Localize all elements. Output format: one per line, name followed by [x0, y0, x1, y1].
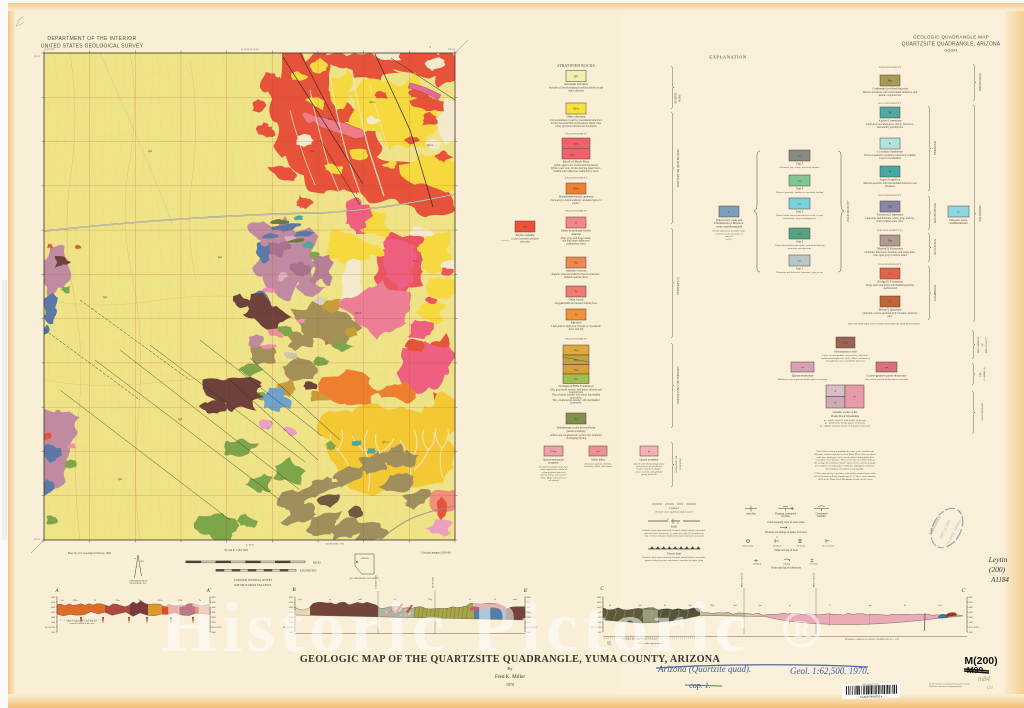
svg-text:SEA LEVEL: SEA LEVEL — [969, 626, 980, 629]
svg-text:DISCONFORMITY: DISCONFORMITY — [878, 194, 901, 197]
svg-text:6000´: 6000´ — [51, 596, 56, 599]
svg-text:Older basalt: Older basalt — [568, 298, 583, 302]
svg-text:m84: m84 — [978, 675, 991, 683]
svg-text:undifferentiated: undifferentiated — [950, 222, 968, 225]
svg-text:QTha: QTha — [573, 188, 580, 191]
svg-text:Qal: Qal — [218, 255, 222, 259]
svg-text:6000´: 6000´ — [969, 596, 974, 599]
svg-text:Ps: Ps — [889, 171, 891, 174]
svg-text:Unit 4: Unit 4 — [796, 187, 804, 191]
svg-text:4°: 4° — [789, 527, 791, 530]
svg-text:flows and tuff: flows and tuff — [569, 328, 585, 331]
svg-text:Folds showing trace of axial p: Folds showing trace of axial plane — [768, 521, 806, 524]
svg-text:Biotite andesite: Biotite andesite — [516, 233, 535, 237]
svg-text:Escabrosa Limestone: Escabrosa Limestone — [877, 213, 904, 217]
svg-text:Dolomite and dolomitic limesto: Dolomite and dolomitic limestone, gray t… — [775, 271, 823, 274]
svg-text:Publication authorized accompa: Publication authorized accompanying map — [929, 685, 961, 688]
svg-text:bedded andesite flows: bedded andesite flows — [564, 276, 588, 279]
svg-text:Inclined: Inclined — [773, 545, 782, 548]
svg-text:side. Arrows indicate relative: side. Arrows indicate relative direction… — [644, 535, 704, 538]
svg-text:UNCONFORMITY: UNCONFORMITY — [565, 133, 588, 136]
svg-text:Overturned: Overturned — [822, 545, 834, 548]
svg-text:PERMIAN: PERMIAN — [933, 140, 937, 155]
svg-text:1967) in the Dome Rock Mountai: 1967) in the Dome Rock Mountains (8 mile… — [818, 478, 873, 481]
svg-text:Bolsa(?) Quartzite: Bolsa(?) Quartzite — [879, 308, 902, 312]
svg-text:pebble conglomerate: pebble conglomerate — [878, 94, 902, 97]
svg-text:Fault: Fault — [671, 525, 678, 529]
svg-text:CONTOUR INTERVAL 40 FEET: CONTOUR INTERVAL 40 FEET — [234, 579, 273, 582]
svg-text:For sale by the U.S. Geologica: For sale by the U.S. Geological Survey, … — [929, 683, 970, 686]
svg-text:Continental red-bed deposits: Continental red-bed deposits — [872, 87, 908, 91]
svg-text:Mafic dikes: Mafic dikes — [591, 458, 606, 462]
svg-text:mudstone: mudstone — [885, 185, 896, 188]
svg-text:QUATER-: QUATER- — [675, 92, 678, 104]
svg-text:QTmp: QTmp — [551, 451, 558, 453]
svg-text:KILOMETERS: KILOMETERS — [300, 570, 317, 573]
svg-text:Kaibab Limestone: Kaibab Limestone — [879, 119, 902, 123]
svg-text:ferruginous mica is probably i: ferruginous mica is probably intrusive — [826, 360, 865, 363]
svg-text:1000´: 1000´ — [969, 631, 974, 634]
svg-text:Fred K. Miller: Fred K. Miller — [495, 674, 525, 680]
svg-text:rocks, undifferentiated: rocks, undifferentiated — [716, 224, 743, 228]
svg-text:Vertical: Vertical — [797, 545, 805, 548]
svg-text:1000´: 1000´ — [51, 631, 56, 634]
svg-text:Qal: Qal — [574, 75, 578, 78]
svg-text:EXPLANATION: EXPLANATION — [709, 55, 747, 60]
svg-text:Inclined: Inclined — [753, 563, 762, 566]
svg-text:Contact: Contact — [669, 506, 679, 510]
svg-text:DEPARTMENT OF THE INTERIOR: DEPARTMENT OF THE INTERIOR — [47, 36, 136, 42]
svg-text:Base by U.S. Geological Survey: Base by U.S. Geological Survey, 1962 — [68, 552, 112, 555]
svg-text:MESOZOIC OR: MESOZOIC OR — [675, 455, 678, 472]
svg-text:abundantly fossiliferous: abundantly fossiliferous — [877, 126, 903, 129]
svg-text:114°45': 114°45' — [448, 48, 456, 51]
svg-text:Strike and dip of beds: Strike and dip of beds — [774, 549, 798, 552]
svg-text:queried where positive uncerta: queried where positive uncertain; sawtee… — [645, 559, 704, 562]
svg-text:Anticline: Anticline — [746, 513, 757, 516]
svg-text:of Dripping Spring: of Dripping Spring — [566, 437, 587, 440]
svg-text:pure: pure — [887, 315, 894, 318]
svg-text:Qal: Qal — [61, 600, 64, 602]
svg-text:CENOZOIC: CENOZOIC — [679, 457, 682, 470]
svg-text:QTba: QTba — [73, 600, 78, 602]
svg-text:anticline: anticline — [817, 515, 827, 518]
svg-text:Dm: Dm — [888, 240, 892, 243]
svg-text:quartz porphyry: quartz porphyry — [566, 429, 586, 433]
svg-text:R: R — [793, 617, 811, 643]
svg-text:Coarse-grained quartz monzonit: Coarse-grained quartz monzonite — [867, 374, 908, 378]
svg-text:*: * — [134, 557, 136, 561]
svg-text:Alluvium and talus: Alluvium and talus — [564, 82, 589, 86]
svg-text:CAMBRIAN: CAMBRIAN — [933, 284, 937, 301]
svg-text:Metadiabase rocks: Metadiabase rocks — [834, 350, 857, 354]
svg-text:5000´: 5000´ — [51, 601, 56, 604]
svg-text:Medium to coarse-grained bioti: Medium to coarse-grained biotite quartz … — [777, 378, 827, 381]
svg-text:Qal: Qal — [118, 477, 122, 481]
svg-text:PALEOZOIC(?)*: PALEOZOIC(?)* — [846, 200, 850, 222]
svg-text:Coconino Sandstone: Coconino Sandstone — [877, 150, 903, 154]
svg-text:TKc: TKc — [574, 378, 578, 381]
svg-text:to Pz ): to Pz ) — [726, 238, 733, 241]
svg-text:Basalt of Black Mesa: Basalt of Black Mesa — [563, 160, 590, 164]
svg-text:Abrigo(?) Formation: Abrigo(?) Formation — [877, 280, 903, 284]
svg-text:15: 15 — [776, 537, 778, 539]
svg-text:2000´: 2000´ — [51, 616, 56, 619]
svg-text:porphyry: porphyry — [548, 461, 559, 465]
svg-text:thick bedded, some chert: thick bedded, some chert — [877, 220, 904, 223]
svg-text:Pz: Pz — [904, 605, 906, 607]
svg-text:Livingston Hills Formation: Livingston Hills Formation — [559, 384, 594, 388]
svg-text:gr: gr — [835, 390, 837, 393]
svg-text:quartzite, and quartzite: quartzite, and quartzite — [788, 247, 812, 250]
svg-text:GEOLOGIC QUADRANGLE MAP: GEOLOGIC QUADRANGLE MAP — [913, 35, 989, 40]
svg-text:TERTIARY OR QUATERNARY: TERTIARY OR QUATERNARY — [676, 148, 680, 188]
svg-text:Qal: Qal — [759, 605, 762, 607]
svg-text:Unit 5: Unit 5 — [796, 162, 804, 166]
svg-text:QTba: QTba — [569, 154, 575, 157]
svg-text:QToa: QToa — [573, 108, 580, 111]
svg-text:Quartz monzonite: Quartz monzonite — [792, 374, 814, 378]
svg-text:QTba: QTba — [573, 143, 579, 146]
svg-text:ARIZONA: ARIZONA — [361, 557, 371, 560]
svg-text:Older alluvium: Older alluvium — [567, 115, 586, 119]
svg-text:Tr: Tr — [575, 314, 577, 317]
svg-text:5000´: 5000´ — [969, 601, 974, 604]
svg-text:(200): (200) — [989, 565, 1006, 574]
svg-text:A1184: A1184 — [990, 576, 1009, 584]
svg-text:Qal: Qal — [178, 417, 182, 421]
svg-text:Qal: Qal — [148, 149, 152, 153]
svg-text:UNCONFORMITY: UNCONFORMITY — [565, 210, 588, 213]
svg-text:matrix: matrix — [572, 202, 580, 205]
svg-text:group minerals: group minerals — [641, 473, 656, 476]
svg-text:sedimentary rocks: sedimentary rocks — [566, 243, 586, 246]
svg-text:DISCONFORMITY(?): DISCONFORMITY(?) — [877, 229, 904, 232]
svg-text:Dashed where approximately loc: Dashed where approximately located — [654, 511, 693, 514]
svg-text:MILES: MILES — [313, 562, 321, 565]
svg-text:NARY: NARY — [679, 94, 682, 102]
svg-text:Tam: Tam — [116, 600, 120, 602]
svg-text:Very coarse grained biotite qu: Very coarse grained biotite quartz monzo… — [865, 378, 908, 381]
svg-text:Geol. 1:62,500. 1970.: Geol. 1:62,500. 1970. — [790, 666, 869, 676]
svg-text:Qal: Qal — [939, 605, 942, 607]
svg-text:BEND IN SECTION: BEND IN SECTION — [814, 572, 816, 587]
svg-text:PRE-: PRE- — [979, 371, 982, 376]
svg-text:older alluvium: older alluvium — [568, 90, 584, 93]
svg-text:3000´: 3000´ — [51, 611, 56, 614]
svg-text:extrusive: extrusive — [520, 241, 531, 244]
svg-text:Bearing and plunge of minor fo: Bearing and plunge of minor fold axes — [765, 531, 807, 534]
svg-text:all altered: all altered — [548, 479, 559, 482]
svg-text:metaclastic, in part metaigneo: metaclastic, in part metaigneous — [783, 217, 816, 220]
svg-text:multicolored: multicolored — [883, 287, 897, 290]
svg-text:3000´: 3000´ — [969, 611, 974, 614]
svg-text:1970: 1970 — [506, 682, 514, 687]
svg-text:QUARTZSITE 1.2 MI.: QUARTZSITE 1.2 MI. — [326, 543, 345, 546]
svg-text:CAMBRIAN: CAMBRIAN — [983, 367, 986, 380]
svg-text:MISSISSIPPIAN: MISSISSIPPIAN — [933, 202, 937, 223]
svg-text:PRECAMBRIAN: PRECAMBRIAN — [977, 336, 980, 353]
svg-text:Horizontal: Horizontal — [743, 545, 754, 548]
svg-text:1000´: 1000´ — [969, 621, 974, 624]
svg-text:Unit 3: Unit 3 — [796, 210, 804, 214]
svg-text:4000´: 4000´ — [51, 606, 56, 609]
svg-text:qmc: qmc — [885, 366, 889, 369]
svg-text:UNCONFORMITY: UNCONFORMITY — [565, 338, 588, 341]
svg-text:Pz: Pz — [728, 211, 730, 214]
svg-text:3 1818 00095305 4: 3 1818 00095305 4 — [860, 694, 883, 699]
svg-text:MN: MN — [140, 561, 144, 563]
svg-text:Martin(?) Formation: Martin(?) Formation — [877, 247, 903, 251]
svg-text:R. 20 W.: R. 20 W. — [246, 544, 255, 547]
svg-text:Unit 1: Unit 1 — [796, 267, 804, 271]
svg-text:In pocket: In pocket — [501, 240, 510, 242]
svg-text:TERTIARY(?): TERTIARY(?) — [676, 277, 680, 295]
svg-text:C´: C´ — [962, 589, 967, 594]
svg-text:STRATIFIED ROCKS: STRATIFIED ROCKS — [557, 64, 595, 68]
svg-text:QToa: QToa — [427, 143, 434, 147]
svg-text:syncline: syncline — [781, 515, 790, 518]
svg-text:Geology mapped 1963-66: Geology mapped 1963-66 — [421, 552, 451, 555]
svg-text:bedded with tuffaceous sedimen: bedded with tuffaceous sedimentary rocks — [554, 170, 599, 173]
svg-text:Strike and dip of schistosity: Strike and dip of schistosity — [771, 567, 802, 570]
svg-text:Amygdaloidal and massive basal: Amygdaloidal and massive basalt flows — [554, 302, 598, 305]
svg-text:R. 20 W. R. 19 W.: R. 20 W. R. 19 W. — [241, 48, 259, 51]
svg-text:33°45': 33°45' — [34, 538, 41, 541]
svg-text:DISCONFORMITY: DISCONFORMITY — [878, 263, 901, 266]
svg-text:tks: tks — [575, 418, 578, 421]
svg-text:Hornblende-biotite andesite: Hornblende-biotite andesite — [559, 195, 594, 199]
svg-text:gr: gr — [854, 395, 856, 398]
svg-text:Vitreous quartzite, medium to: Vitreous quartzite, medium to massively … — [776, 191, 824, 194]
svg-text:matically shown in this area: matically shown in this area — [70, 622, 96, 625]
svg-text:tremolite, albite, and quartz: tremolite, albite, and quartz — [584, 465, 612, 468]
svg-text:Tba: Tba — [413, 259, 418, 263]
svg-text:mite, light gray to almost bla: mite, light gray to almost black — [873, 254, 907, 257]
svg-text:Tba: Tba — [328, 117, 333, 121]
svg-text:1000´: 1000´ — [51, 621, 56, 624]
svg-text:graywacke: graywacke — [570, 402, 582, 405]
svg-text:SCALE 1:62 500: SCALE 1:62 500 — [224, 548, 248, 552]
svg-text:QUADRANGLE LOCATION: QUADRANGLE LOCATION — [349, 577, 378, 580]
svg-text:gr: gr — [835, 401, 837, 404]
svg-text:UNITED STATES GEOLOGICAL SURVE: UNITED STATES GEOLOGICAL SURVEY — [41, 44, 144, 50]
svg-text:Vertical: Vertical — [810, 563, 818, 566]
svg-text:DECLINATION, 1970: DECLINATION, 1970 — [130, 582, 147, 585]
svg-text:UNIV LIBRARY WYO: UNIV LIBRARY WYO — [862, 683, 880, 686]
svg-text:UNCONFORMITY: UNCONFORMITY — [879, 66, 902, 69]
svg-text:qm: qm — [801, 366, 804, 369]
svg-text:Qal: Qal — [103, 295, 107, 299]
svg-text:UNCONFORMABLE ON COARSE-GRAINE: UNCONFORMABLE ON COARSE-GRAINED QUARTZ M… — [848, 323, 921, 326]
svg-text:Unit 2: Unit 2 — [796, 240, 804, 244]
svg-text:Thrust fault: Thrust fault — [667, 552, 682, 556]
svg-text:in part crossbedded: in part crossbedded — [879, 157, 901, 160]
svg-text:SEA LEVEL: SEA LEVEL — [45, 626, 56, 629]
svg-text:GQ-841: GQ-841 — [944, 49, 958, 53]
svg-text:qm: qm — [869, 604, 872, 607]
svg-text:QToa: QToa — [369, 100, 376, 104]
svg-text:QUARTZSITE QUADRANGLE, ARIZONA: QUARTZSITE QUADRANGLE, ARIZONA — [902, 42, 1001, 48]
svg-text:33°52': 33°52' — [34, 55, 41, 58]
svg-text:AGE UNKNOWN: AGE UNKNOWN — [981, 403, 984, 421]
svg-text:2000´: 2000´ — [969, 616, 974, 619]
svg-text:Ta: Ta — [94, 600, 96, 602]
svg-text:OR: OR — [982, 343, 984, 347]
svg-text:Supai Formation: Supai Formation — [880, 178, 901, 182]
svg-text:Plunge: Plunge — [784, 563, 792, 566]
svg-text:Dome Rock Mountains: Dome Rock Mountains — [831, 414, 860, 418]
svg-text:BEND IN SECTION: BEND IN SECTION — [742, 572, 744, 587]
svg-text:QTob: QTob — [355, 311, 362, 315]
svg-text:MESOZOIC(?): MESOZOIC(?) — [978, 73, 982, 91]
svg-text:CRETACEOUS OR TERTIARY: CRETACEOUS OR TERTIARY — [676, 365, 680, 404]
svg-text:DEVONIAN: DEVONIAN — [933, 238, 937, 255]
svg-text:Tba: Tba — [138, 600, 141, 602]
svg-text:Rhyolite: Rhyolite — [571, 321, 582, 325]
svg-text:O1: O1 — [987, 685, 994, 691]
svg-text:Dolomite, tan, cherty, massive: Dolomite, tan, cherty, massively bedded — [779, 166, 821, 169]
svg-text:DISCONFORMITY: DISCONFORMITY — [878, 102, 901, 105]
svg-text:4000´: 4000´ — [969, 606, 974, 609]
svg-text:andesite: andesite — [571, 232, 581, 236]
svg-text:Leytin: Leytin — [988, 555, 1008, 564]
svg-text:QToa: QToa — [382, 440, 389, 444]
svg-text:by-formation correlation is no: by-formation correlation is not possible… — [826, 467, 865, 470]
svg-text:UNCONFORMITY: UNCONFORMITY — [565, 177, 588, 180]
svg-text:Tba: Tba — [310, 149, 315, 153]
svg-text:MESOZOIC(?)**: MESOZOIC(?)** — [985, 336, 988, 353]
svg-text:INTERIOR—GEOLOGICAL SURVEY,: INTERIOR—GEOLOGICAL SURVEY, WASHINGTON, … — [845, 638, 899, 641]
svg-text:Quartz porphyry: Quartz porphyry — [639, 458, 659, 462]
svg-text:areas of present alluvial accu: areas of present alluvial accumulation — [555, 125, 597, 128]
svg-text:PALEOZOIC: PALEOZOIC — [978, 205, 982, 222]
svg-text:gr , slightly sheared, biotite: gr , slightly sheared, biotite-rich quar… — [820, 424, 871, 427]
svg-text:Andesite breccia: Andesite breccia — [566, 269, 587, 273]
svg-text:114°52'30'': 114°52'30'' — [44, 48, 55, 51]
